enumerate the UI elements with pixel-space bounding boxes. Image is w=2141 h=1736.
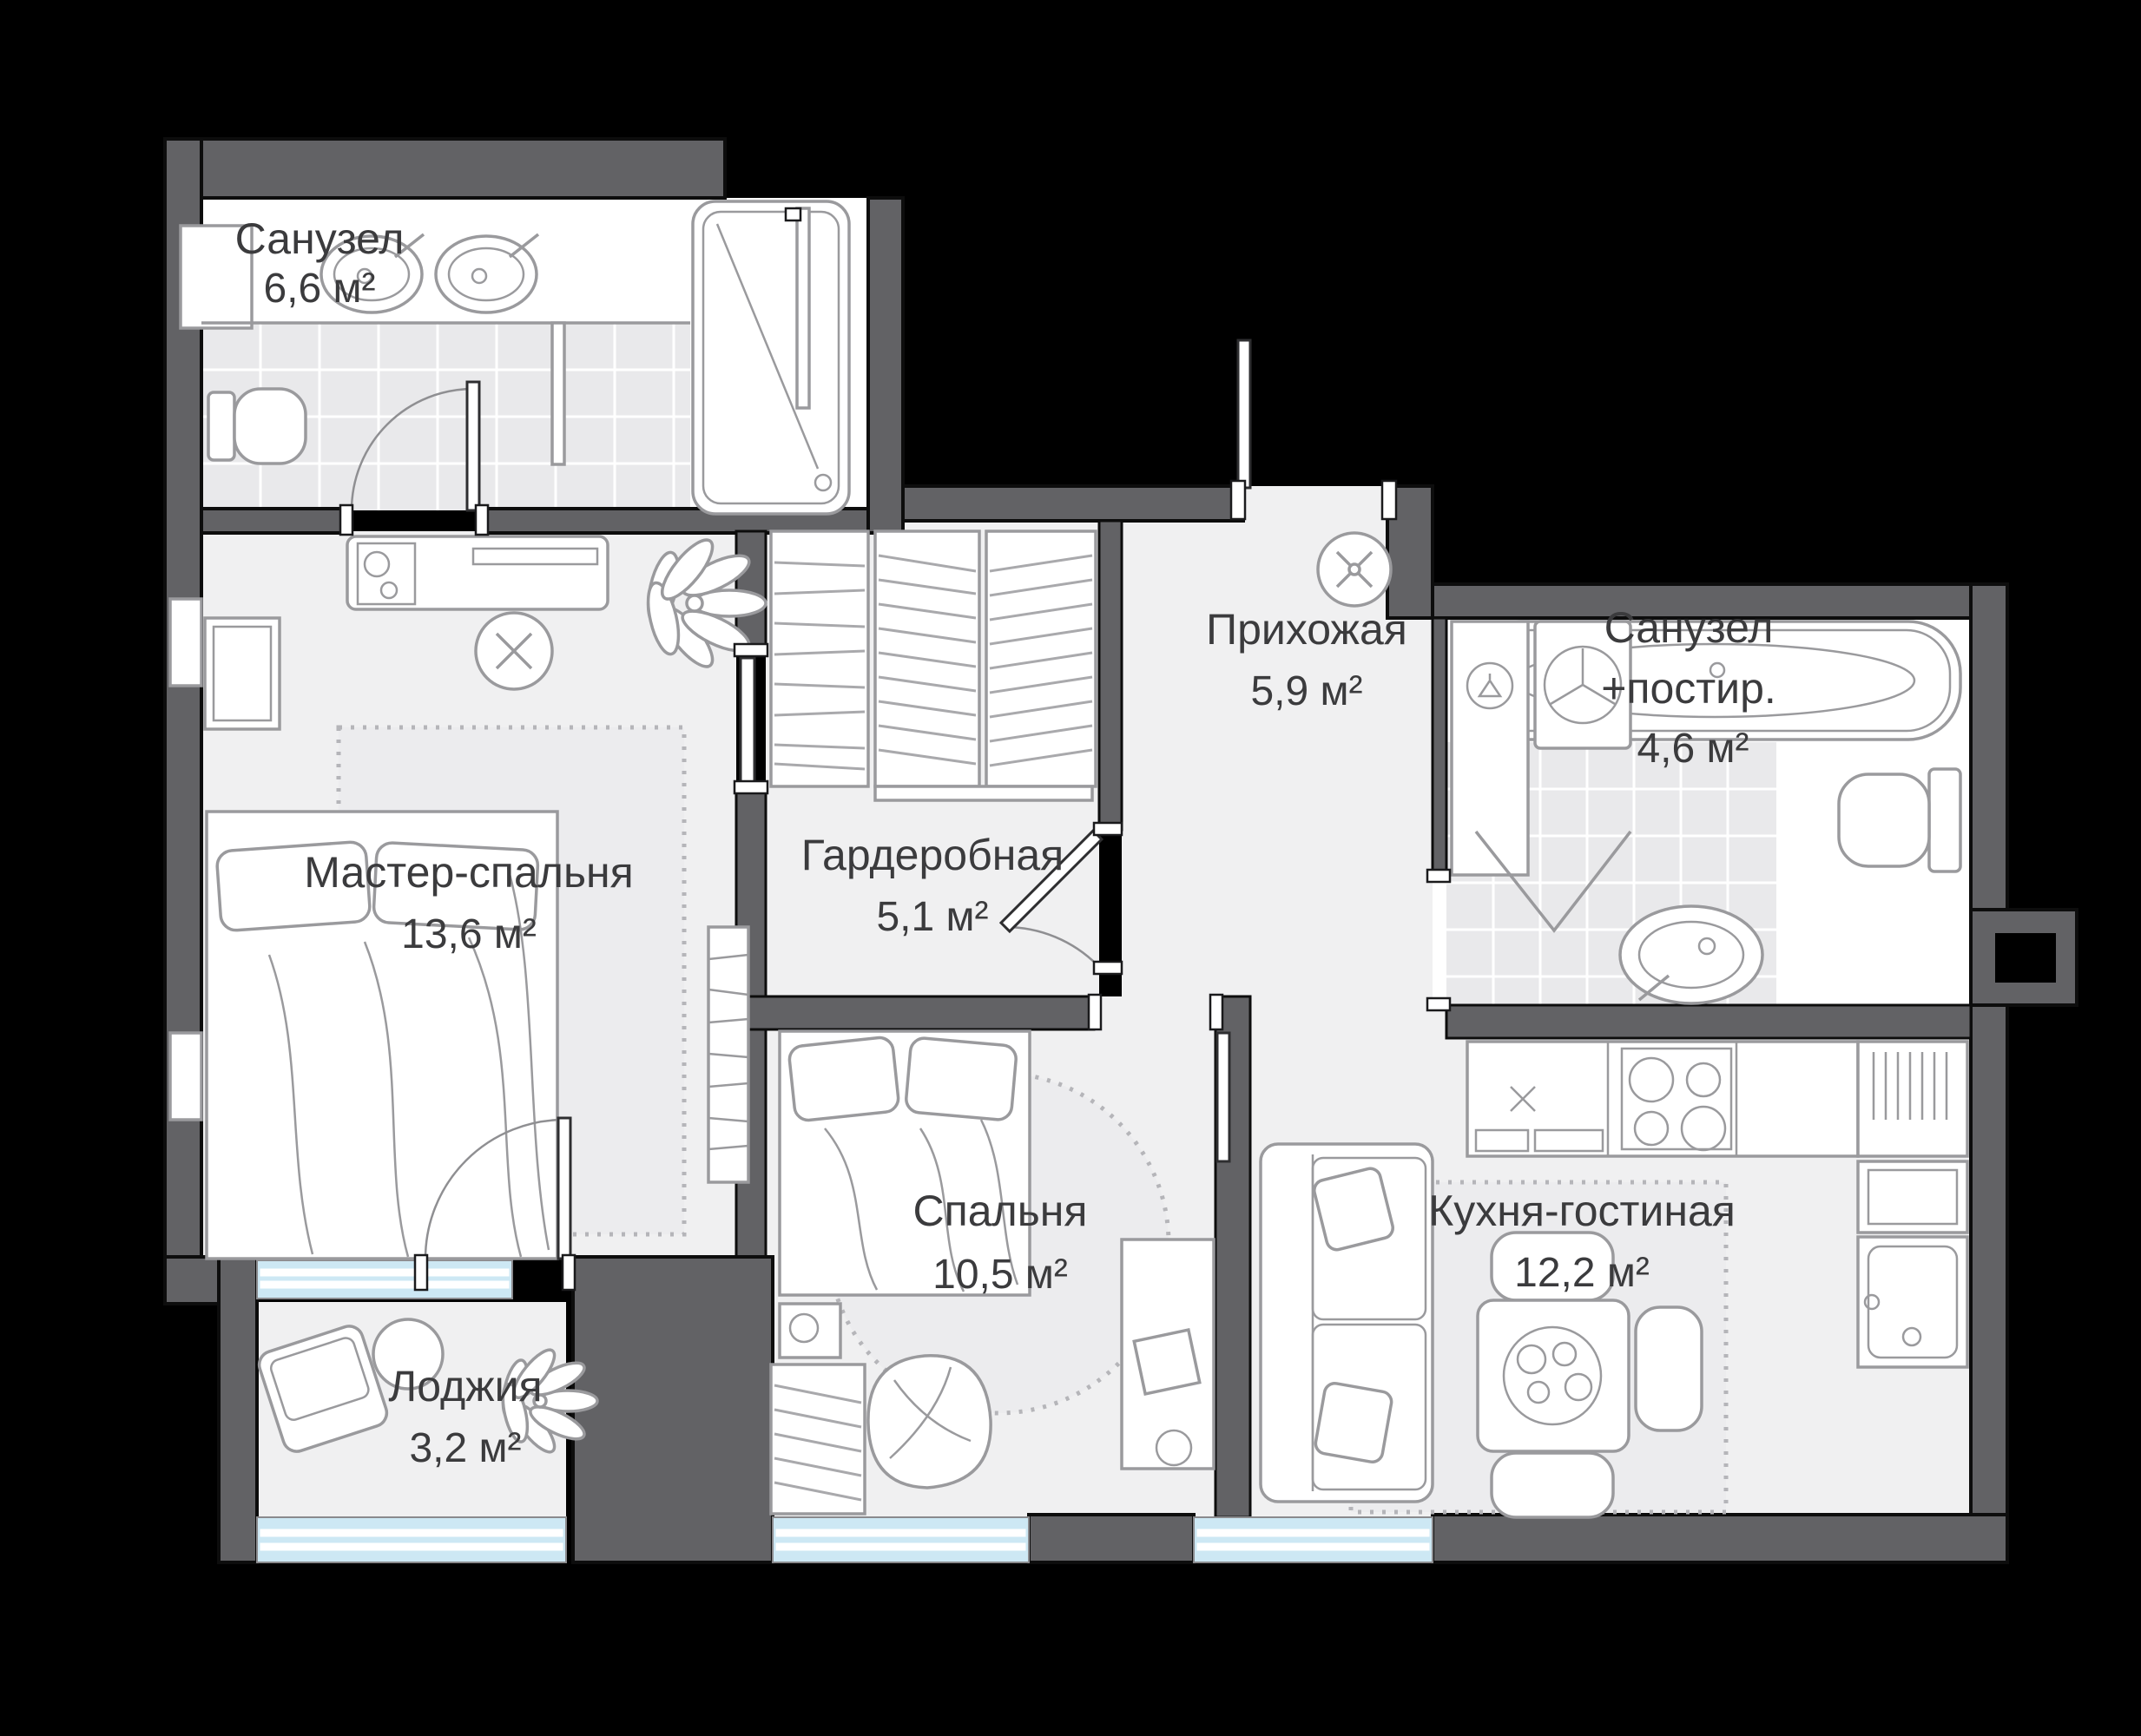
- chair-right: [1636, 1307, 1702, 1430]
- wall-bath1-bottom-left: [201, 509, 347, 533]
- bath2-label2: +постир.: [1601, 664, 1776, 713]
- wardrobe-sliding-door: [741, 658, 754, 785]
- bath2-area: 4,6 м²: [1637, 726, 1749, 772]
- shower-door-panel: [797, 208, 809, 408]
- master-desk: [347, 536, 608, 609]
- bath1-area: 6,6 м²: [263, 266, 375, 312]
- window-kitchen: [1194, 1517, 1433, 1562]
- wardrobe-hanging-right: [986, 531, 1096, 786]
- master-chair: [476, 613, 552, 689]
- sink-right-icon: [436, 234, 538, 312]
- master-bookshelf: [708, 927, 748, 1182]
- wardrobe-hanging-mid: [875, 531, 979, 786]
- sink2-icon: [1620, 906, 1762, 1003]
- bath1-label: Санузел: [235, 214, 405, 263]
- floor-plan-stage: Санузел 6,6 м²: [0, 0, 2141, 1736]
- wall-bath2-left: [1433, 618, 1446, 877]
- sofa: [1261, 1144, 1433, 1502]
- wall-hall-top: [903, 486, 1243, 521]
- bath1-partition-screen: [552, 323, 564, 464]
- toilet-icon: [208, 389, 306, 464]
- wall-niche-2: [170, 1033, 201, 1120]
- bedroom-closet: [771, 1364, 865, 1514]
- wall-bath2-bottom: [1446, 1005, 1971, 1038]
- wardrobe-label: Гардеробная: [801, 831, 1064, 879]
- wall-right-notch: [1995, 933, 2056, 983]
- floor-entrance-threshold: [1243, 486, 1387, 521]
- window-bedroom: [773, 1517, 1029, 1562]
- bedroom-beanbag: [868, 1356, 991, 1488]
- kitchen-tall-unit: [1858, 1042, 1967, 1156]
- ceiling-light-icon: [1318, 533, 1391, 606]
- hall-area: 5,9 м²: [1250, 668, 1362, 714]
- kitchen-unit-mid: [1858, 1161, 1967, 1233]
- wall-pier-loggia-bedroom: [573, 1257, 773, 1562]
- window-loggia-bottom: [257, 1517, 566, 1562]
- wall-loggia-left: [219, 1257, 257, 1562]
- entrance-door: [1238, 340, 1250, 488]
- master-area: 13,6 м²: [401, 911, 537, 957]
- wall-right: [1971, 584, 2007, 1562]
- wall-top: [165, 139, 725, 198]
- hall-label: Прихожая: [1206, 605, 1407, 654]
- kitchen-area: 12,2 м²: [1514, 1250, 1650, 1296]
- master-label: Мастер-спальня: [304, 848, 633, 897]
- bedroom-area: 10,5 м²: [932, 1252, 1068, 1298]
- kitchen-sink-unit: [1858, 1237, 1967, 1367]
- table-top: [1478, 1300, 1629, 1451]
- chair-bottom: [1492, 1453, 1613, 1517]
- wall-bath1-right: [868, 198, 903, 533]
- wall-pier-bedroom-kitchen: [1029, 1515, 1194, 1562]
- toilet2-icon: [1839, 769, 1960, 871]
- wall-bedroom-top: [736, 996, 1094, 1029]
- wardrobe-baseboard: [875, 786, 1092, 800]
- bedroom-door: [1217, 1033, 1229, 1161]
- wardrobe-area: 5,1 м²: [876, 894, 988, 940]
- master-dresser: [205, 618, 280, 729]
- bedroom-desk: [1122, 1240, 1214, 1469]
- bath2-label: Санузел: [1604, 603, 1774, 652]
- floor-plan: Санузел 6,6 м²: [0, 0, 2141, 1736]
- wall-bath1-bottom-right: [479, 509, 903, 533]
- bedroom-nightstand: [780, 1304, 840, 1358]
- loggia-area: 3,2 м²: [409, 1425, 521, 1471]
- glazing-master-loggia: [257, 1260, 512, 1299]
- wall-niche-1: [170, 599, 201, 686]
- hanger-closet-icon: [1452, 621, 1528, 875]
- shower-icon: [693, 201, 849, 514]
- bedroom-label: Спальня: [913, 1187, 1088, 1235]
- wall-wardrobe-right: [1099, 521, 1122, 830]
- wardrobe-shelving-left: [771, 531, 868, 786]
- kitchen-label: Кухня-гостиная: [1428, 1187, 1736, 1235]
- loggia-label: Лоджия: [388, 1362, 542, 1410]
- wall-bottom-right: [1433, 1515, 2007, 1562]
